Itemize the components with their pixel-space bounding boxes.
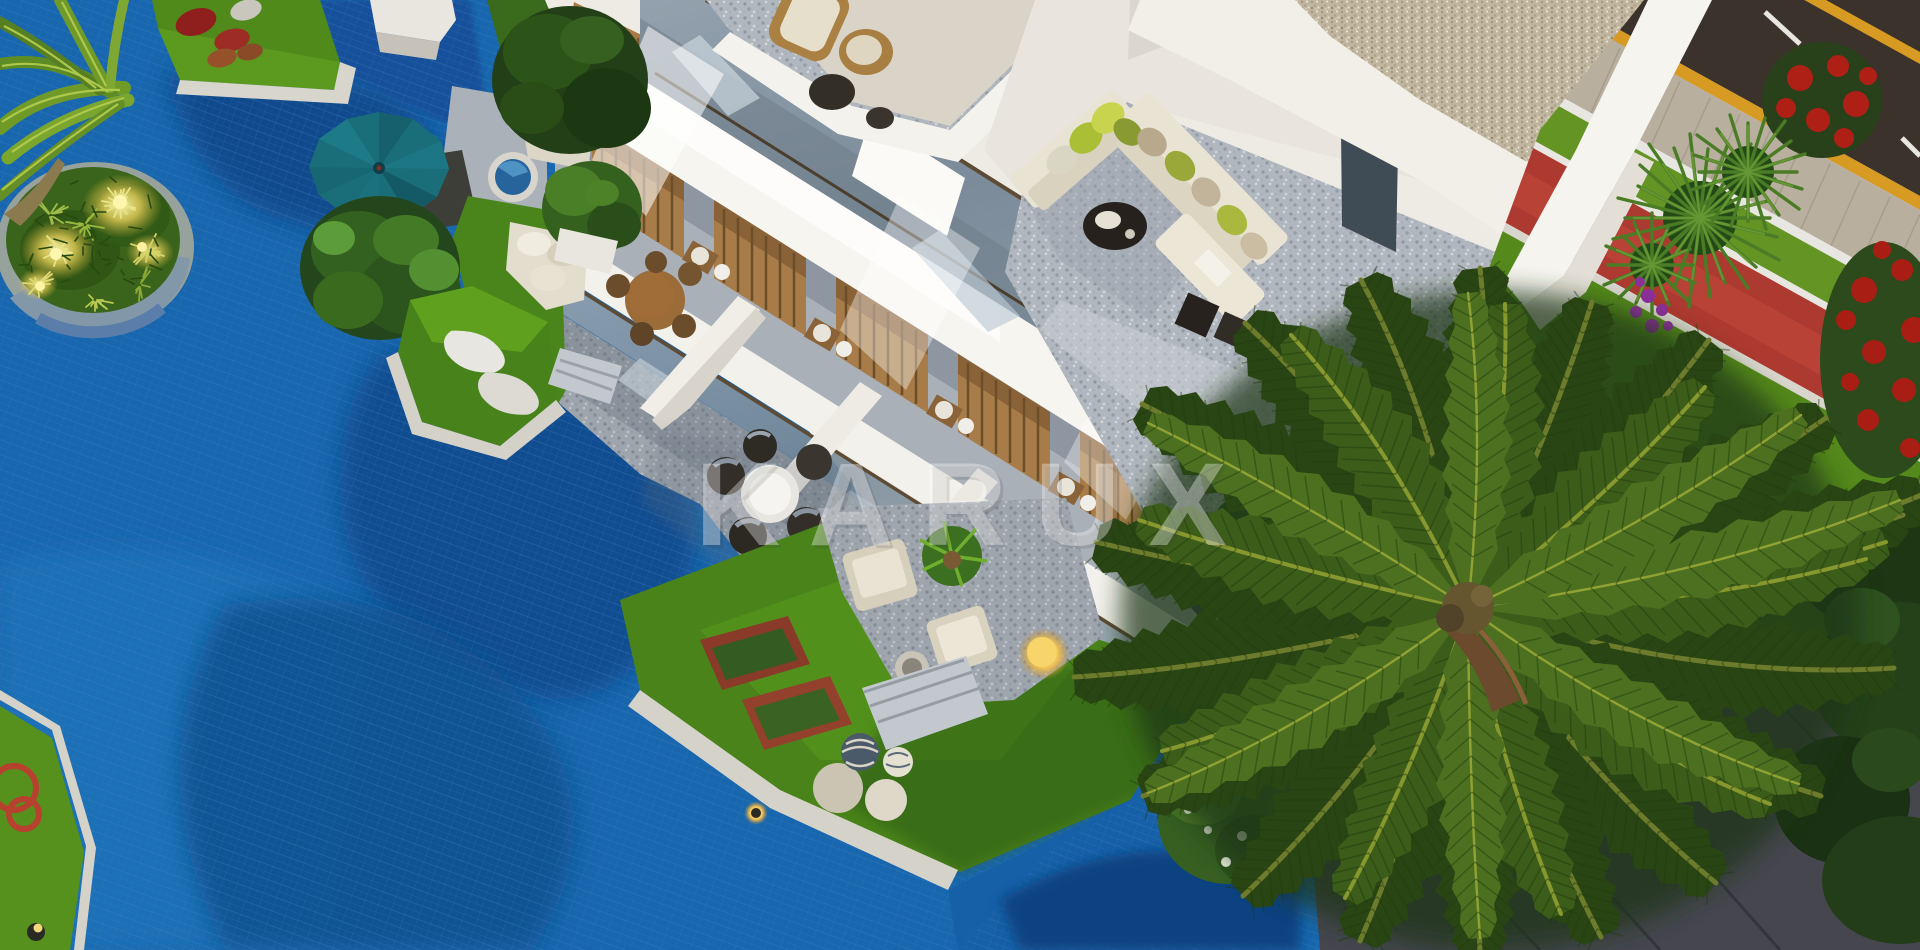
svg-text:KARUX: KARUX xyxy=(695,439,1255,571)
